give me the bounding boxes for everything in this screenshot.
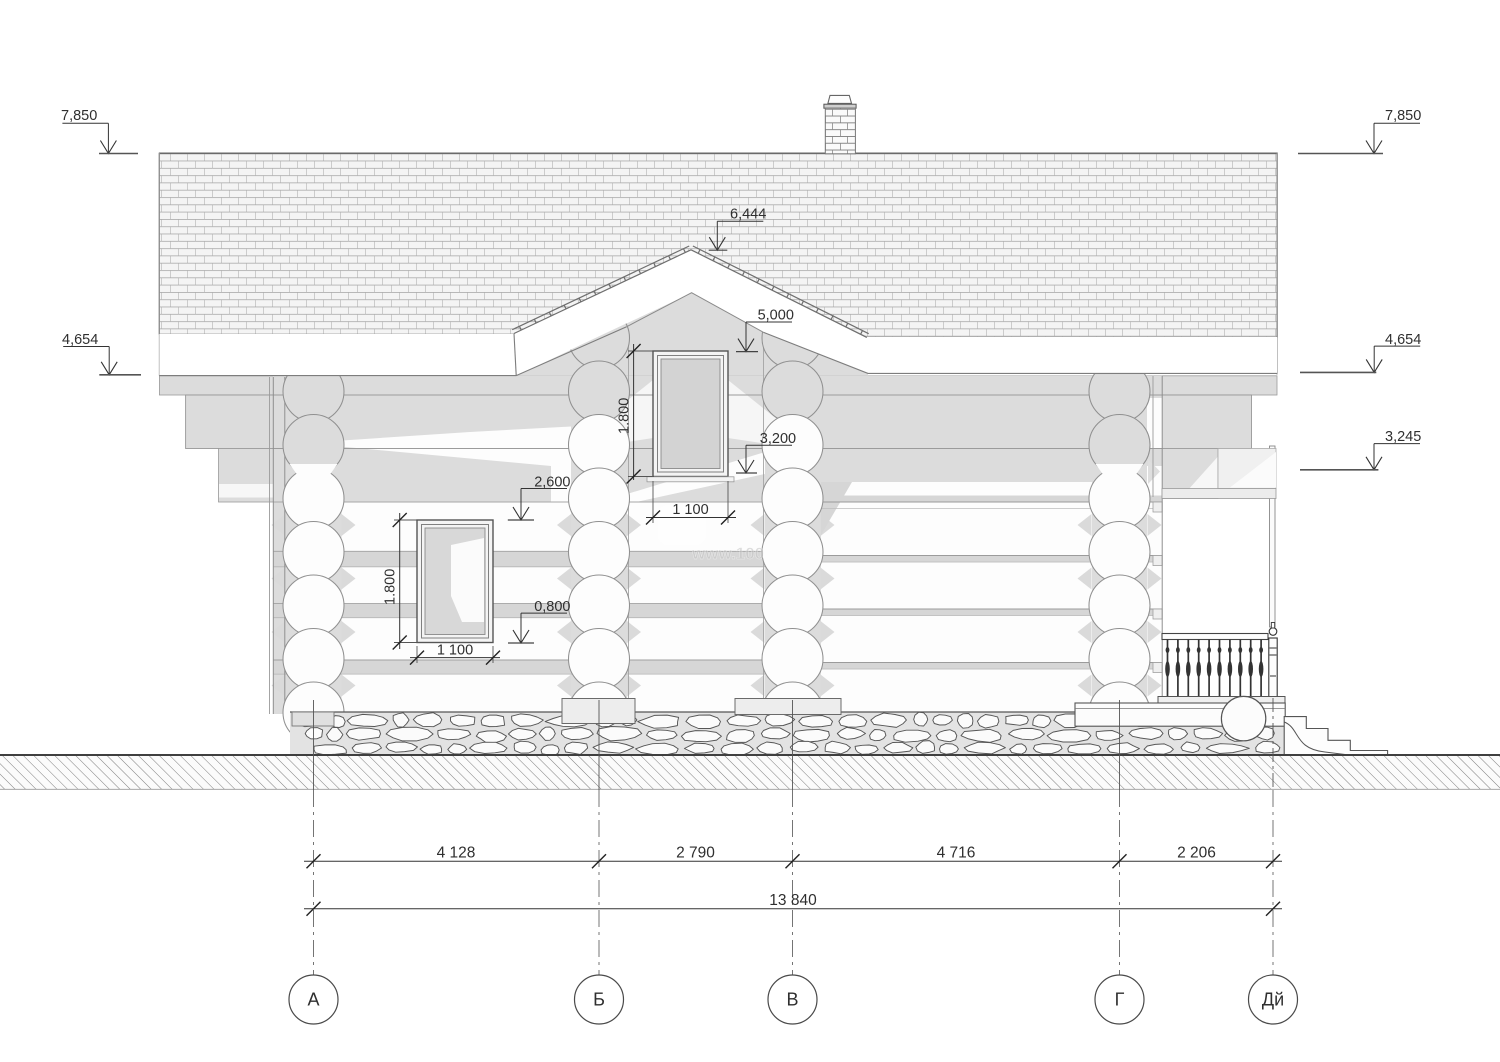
svg-text:1 100: 1 100 <box>672 502 708 518</box>
svg-text:Б: Б <box>593 990 605 1010</box>
svg-text:4,654: 4,654 <box>62 332 98 348</box>
svg-text:1 100: 1 100 <box>437 643 473 659</box>
svg-text:2 790: 2 790 <box>676 845 715 862</box>
svg-text:6,444: 6,444 <box>730 207 766 223</box>
svg-text:Дй: Дй <box>1262 990 1284 1010</box>
svg-text:А: А <box>307 990 319 1010</box>
svg-text:Г: Г <box>1115 990 1125 1010</box>
svg-text:www.100: www.100 <box>691 544 764 563</box>
svg-text:0,800: 0,800 <box>534 599 570 615</box>
svg-text:3,245: 3,245 <box>1385 429 1421 445</box>
svg-text:4 716: 4 716 <box>937 845 976 862</box>
svg-text:В: В <box>786 990 798 1010</box>
svg-text:7,850: 7,850 <box>61 108 97 124</box>
svg-text:13 840: 13 840 <box>769 892 817 909</box>
svg-text:3,200: 3,200 <box>760 431 796 447</box>
svg-text:1.800: 1.800 <box>383 569 399 605</box>
svg-text:2 206: 2 206 <box>1177 845 1216 862</box>
svg-text:4 128: 4 128 <box>437 845 476 862</box>
svg-text:5,000: 5,000 <box>758 308 794 324</box>
svg-text:7,850: 7,850 <box>1385 108 1421 124</box>
svg-text:1.800: 1.800 <box>617 398 633 434</box>
